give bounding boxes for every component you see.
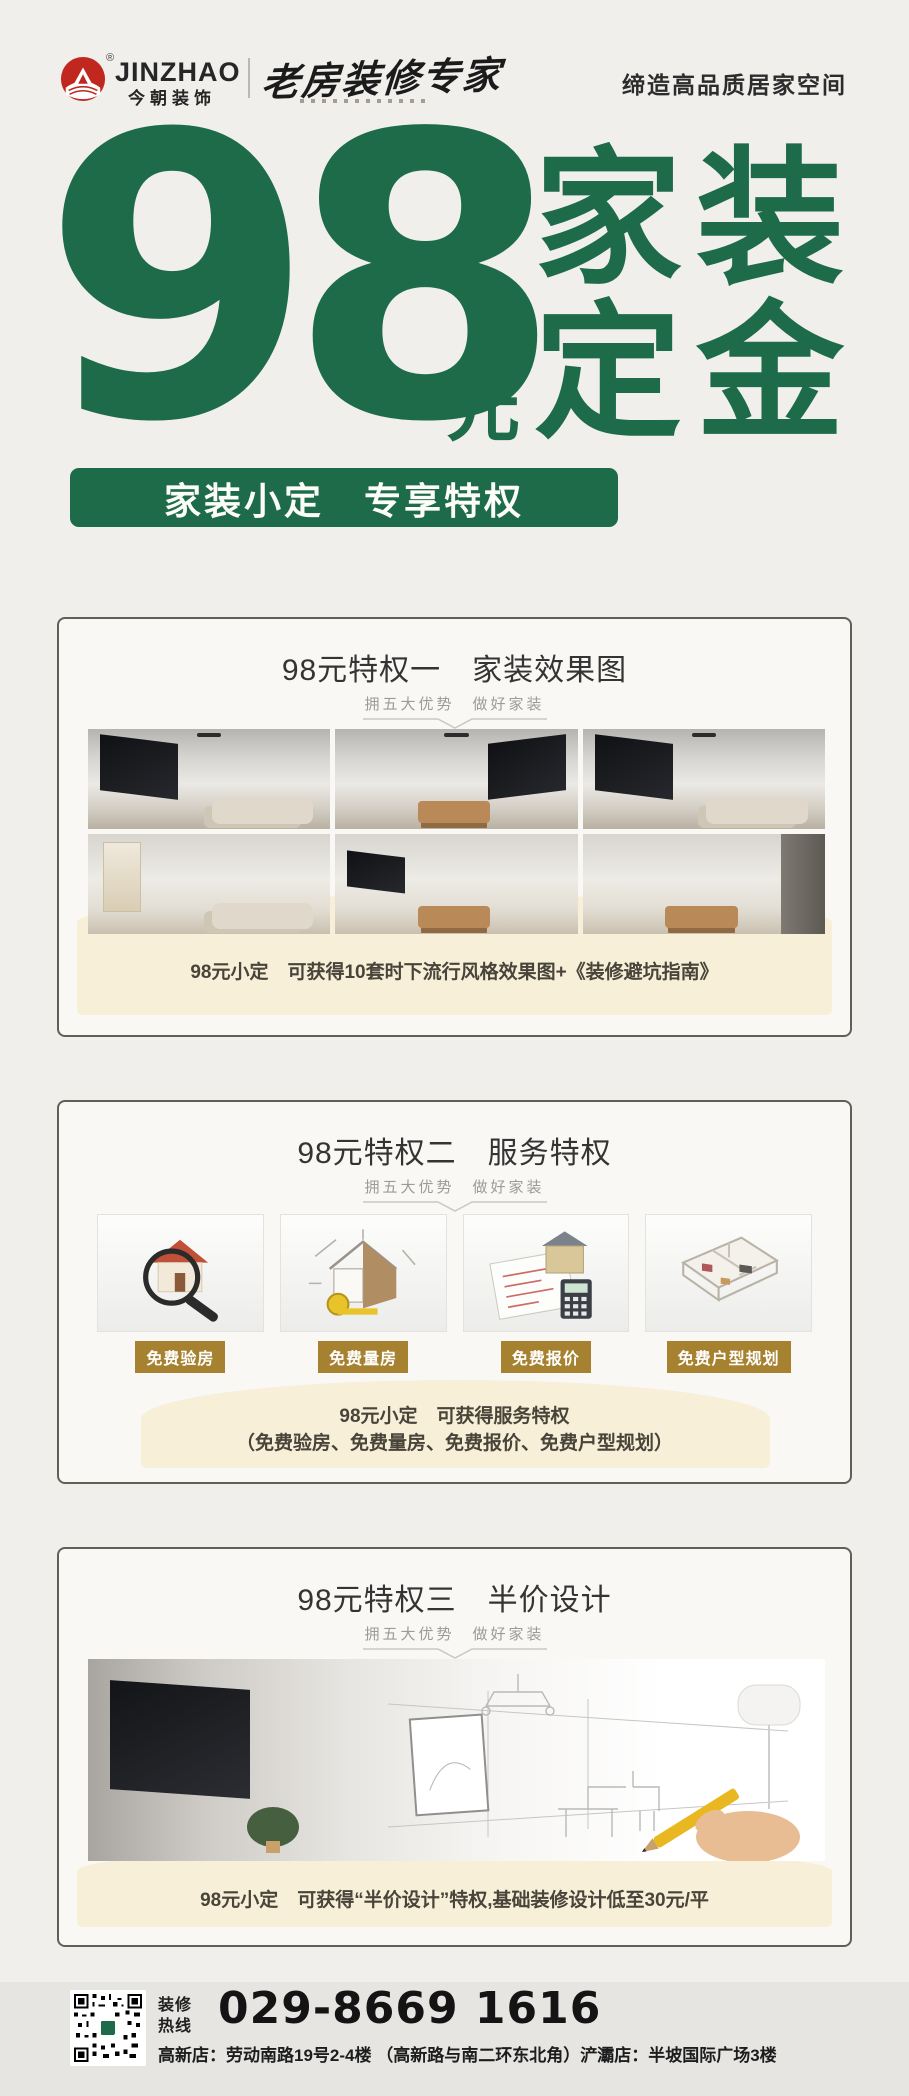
promo-poster: ® JINZHAO 今朝装饰 老房装修专家 缔造高品质居家空间 98 元 家装 … xyxy=(0,0,909,2096)
card-subtitle: 拥五大优势 做好家装 xyxy=(59,693,850,714)
card-subtitle: 拥五大优势 做好家装 xyxy=(59,1176,850,1197)
hero-price-unit: 元 xyxy=(446,372,520,446)
house-magnifier-icon xyxy=(115,1221,245,1325)
room-photo xyxy=(335,834,577,934)
card-caption-line1: 98元小定 可获得服务特权 xyxy=(59,1401,850,1428)
floorplan-3d-icon xyxy=(664,1221,794,1325)
room-photo xyxy=(583,834,825,934)
blueprint-calculator-icon xyxy=(481,1221,611,1325)
subtitle-divider-icon xyxy=(360,1200,550,1213)
hotline-label-top: 装修 xyxy=(158,1996,192,2017)
qr-code xyxy=(70,1990,146,2066)
hotline-label: 装修 热线 xyxy=(158,1996,192,2038)
house-measuring-icon xyxy=(298,1221,428,1325)
effect-photo-grid xyxy=(88,729,825,934)
service-photo-inspection xyxy=(97,1214,264,1332)
privilege-card-1: 98元特权一 家装效果图 拥五大优势 做好家装 98元小定 可获得10套时下流行… xyxy=(57,617,852,1037)
room-photo xyxy=(88,729,330,829)
service-item: 免费户型规划 xyxy=(645,1214,812,1373)
room-photo xyxy=(88,834,330,934)
service-photo-floorplan xyxy=(645,1214,812,1332)
half-price-design-photo xyxy=(88,1659,825,1861)
card-title: 98元特权三 半价设计 xyxy=(59,1575,850,1619)
card-caption-line2: （免费验房、免费量房、免费报价、免费户型规划） xyxy=(59,1428,850,1455)
hero-word-bottom: 定金 xyxy=(534,300,858,448)
service-photo-measure xyxy=(280,1214,447,1332)
hotline-phone: 029-8669 1616 xyxy=(218,1983,601,2034)
card-subtitle: 拥五大优势 做好家装 xyxy=(59,1623,850,1644)
service-label: 免费报价 xyxy=(501,1341,591,1373)
card-caption: 98元小定 可获得10套时下流行风格效果图+《装修避坑指南》 xyxy=(59,957,850,984)
room-photo xyxy=(335,729,577,829)
service-label: 免费量房 xyxy=(318,1341,408,1373)
footer-bar: 装修 热线 029-8669 1616 高新店：劳动南路19号2-4楼 （高新路… xyxy=(0,1982,909,2096)
privilege-card-3: 98元特权三 半价设计 拥五大优势 做好家装 xyxy=(57,1547,852,1947)
service-list: 免费验房 免费量房 xyxy=(97,1214,812,1373)
card-title: 98元特权一 家装效果图 xyxy=(59,645,850,689)
service-item: 免费量房 xyxy=(280,1214,447,1373)
design-sketch-art xyxy=(88,1659,825,1861)
store-address: 高新店：劳动南路19号2-4楼 （高新路与南二环东北角）浐灞店：半坡国际广场3楼 xyxy=(158,2041,777,2066)
service-label: 免费验房 xyxy=(135,1341,225,1373)
service-label: 免费户型规划 xyxy=(667,1341,791,1373)
promo-banner: 家装小定 专享特权 xyxy=(70,468,618,527)
room-photo xyxy=(583,729,825,829)
service-item: 免费验房 xyxy=(97,1214,264,1373)
card-caption: 98元小定 可获得“半价设计”特权,基础装修设计低至30元/平 xyxy=(59,1885,850,1912)
card-title: 98元特权二 服务特权 xyxy=(59,1128,850,1172)
privilege-card-2: 98元特权二 服务特权 拥五大优势 做好家装 免费验房 xyxy=(57,1100,852,1484)
header-slogan: 缔造高品质居家空间 xyxy=(622,66,847,100)
hero-word-top: 家装 xyxy=(534,146,858,294)
hotline-label-bottom: 热线 xyxy=(158,2017,192,2038)
qr-code-icon xyxy=(74,1994,142,2062)
service-photo-quote xyxy=(463,1214,630,1332)
service-item: 免费报价 xyxy=(463,1214,630,1373)
